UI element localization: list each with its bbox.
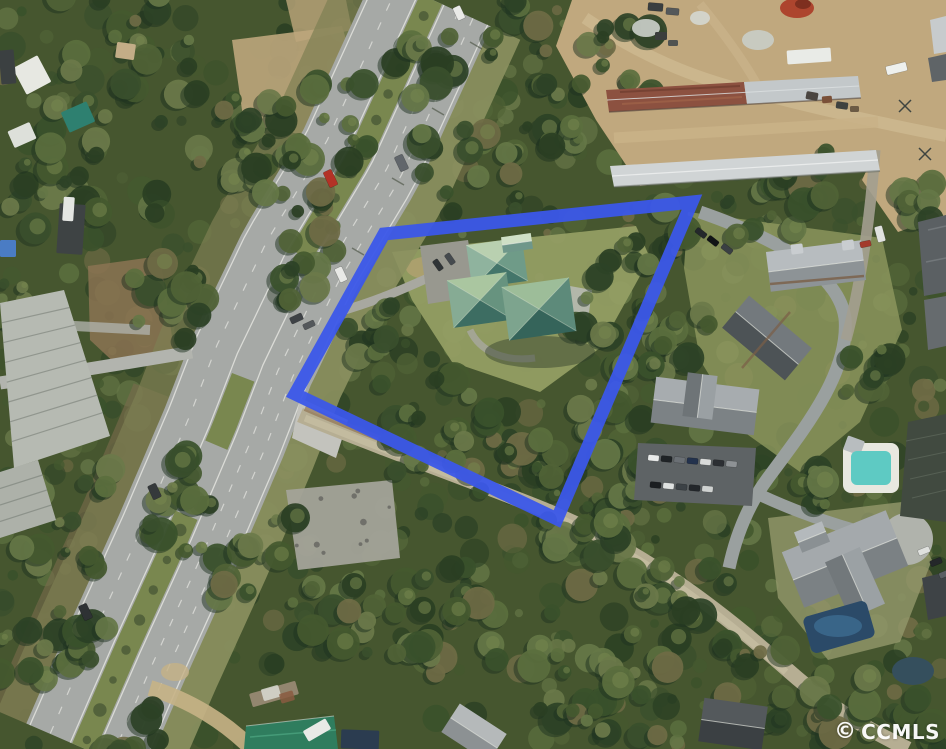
satellite-image <box>0 0 946 749</box>
aerial-photo: © CCMLS <box>0 0 946 749</box>
